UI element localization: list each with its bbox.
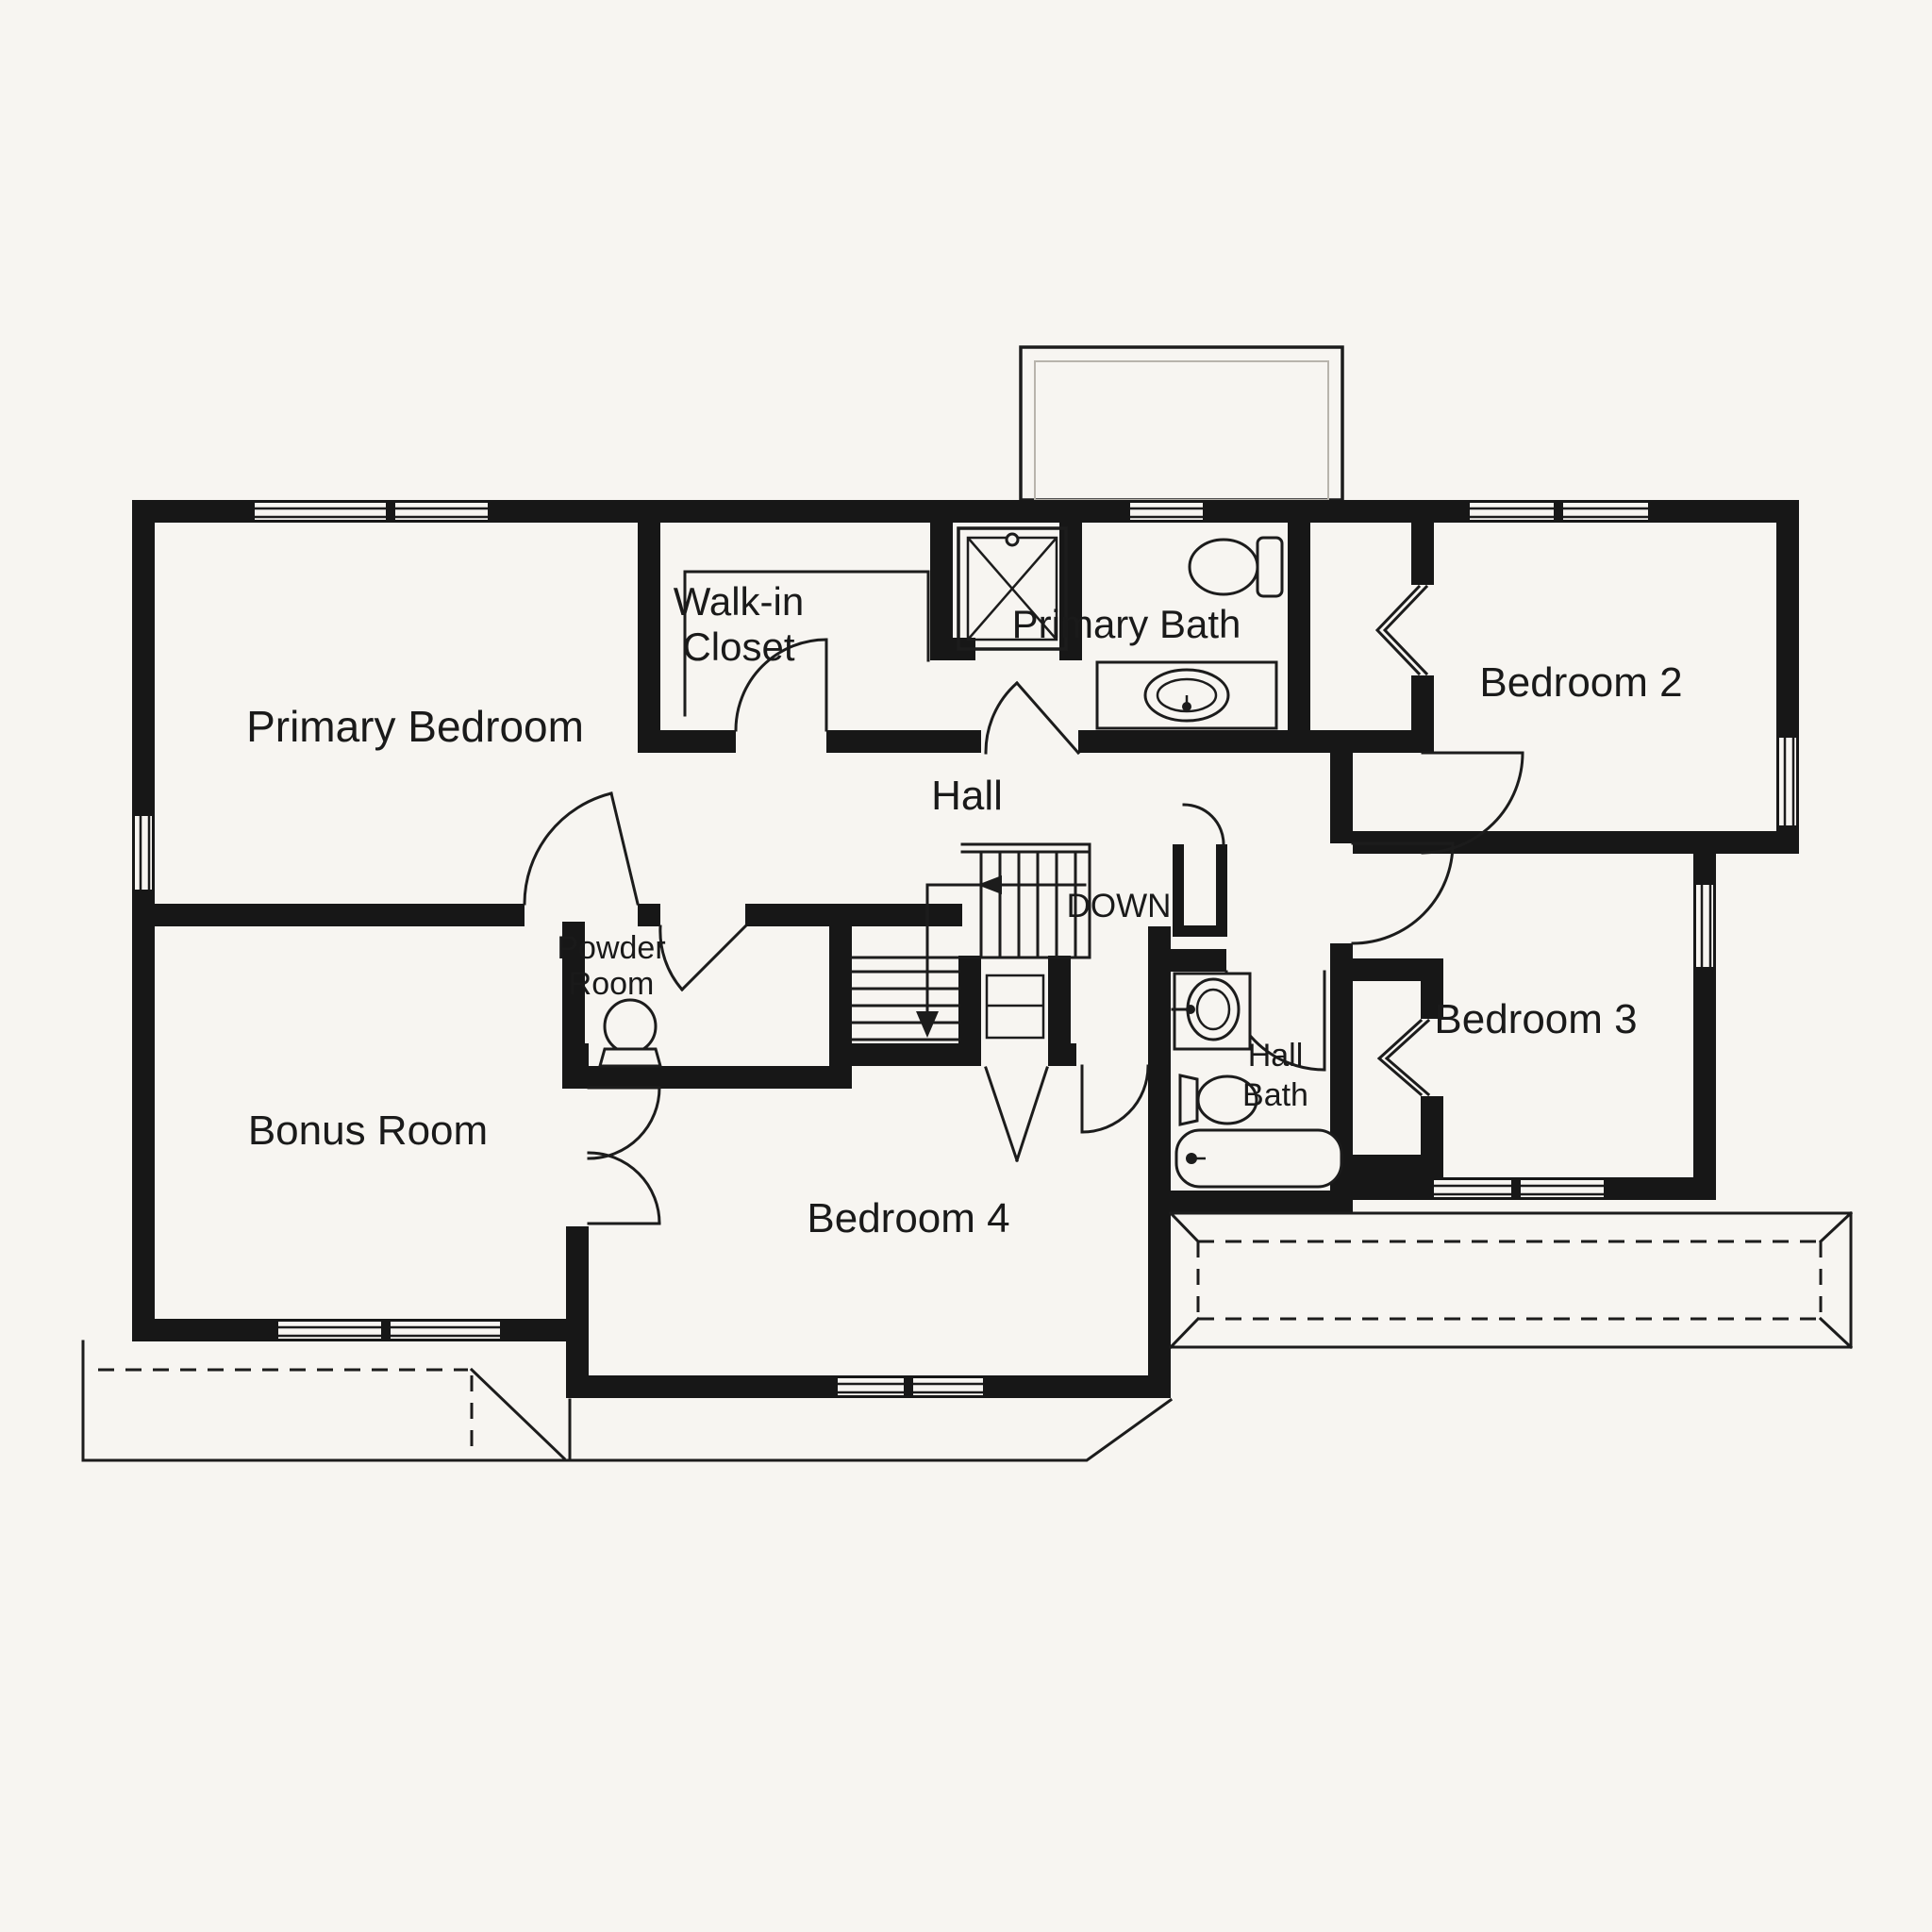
door (986, 1068, 1047, 1160)
bifold-door (1379, 1021, 1428, 1094)
room-label-bedroom-3: Bedroom 3 (1434, 996, 1637, 1042)
floor-plan-drawing: Primary Bedroom Walk-in Closet Primary B… (0, 0, 1932, 1932)
bathtub (1176, 1130, 1341, 1187)
door (525, 793, 638, 904)
exterior-walls (132, 500, 1799, 1398)
room-label-walk-in-closet: Walk-in (674, 579, 804, 624)
window (278, 1319, 500, 1341)
room-label-primary-bedroom: Primary Bedroom (246, 702, 584, 751)
window (1434, 1177, 1604, 1200)
window (135, 816, 152, 890)
door (660, 926, 745, 990)
windows (135, 500, 1796, 1398)
floor-plan-page: Primary Bedroom Walk-in Closet Primary B… (0, 0, 1932, 1932)
room-label-walk-in-closet: Closet (682, 625, 794, 669)
window (1696, 885, 1713, 967)
room-label-bedroom-4: Bedroom 4 (807, 1195, 1009, 1241)
window (255, 500, 488, 523)
room-label-bedroom-2: Bedroom 2 (1479, 659, 1682, 706)
doors (525, 587, 1523, 1224)
door (1353, 843, 1453, 943)
window (1779, 738, 1796, 825)
door (1184, 805, 1224, 844)
pedestal-sink (1173, 974, 1250, 1049)
window (1130, 503, 1203, 520)
room-label-bonus-room: Bonus Room (248, 1108, 488, 1154)
bump-out (1021, 347, 1342, 500)
window (838, 1375, 983, 1398)
room-label-primary-bath: Primary Bath (1012, 602, 1241, 646)
room-label-hall-bath: Hall (1248, 1038, 1304, 1074)
room-label-powder-room: Room (569, 966, 655, 1002)
vanity-sink (1097, 662, 1276, 728)
door (1082, 1066, 1148, 1132)
bifold-door (1377, 587, 1426, 674)
window (1470, 500, 1648, 523)
stairs-down-label: DOWN (1067, 888, 1172, 924)
room-label-hall: Hall (931, 773, 1003, 819)
room-label-hall-bath: Bath (1242, 1077, 1308, 1113)
room-label-powder-room: Powder (557, 930, 665, 966)
toilet (600, 1000, 660, 1066)
door (986, 683, 1078, 753)
toilet (1190, 538, 1282, 596)
double-door (589, 1088, 659, 1224)
